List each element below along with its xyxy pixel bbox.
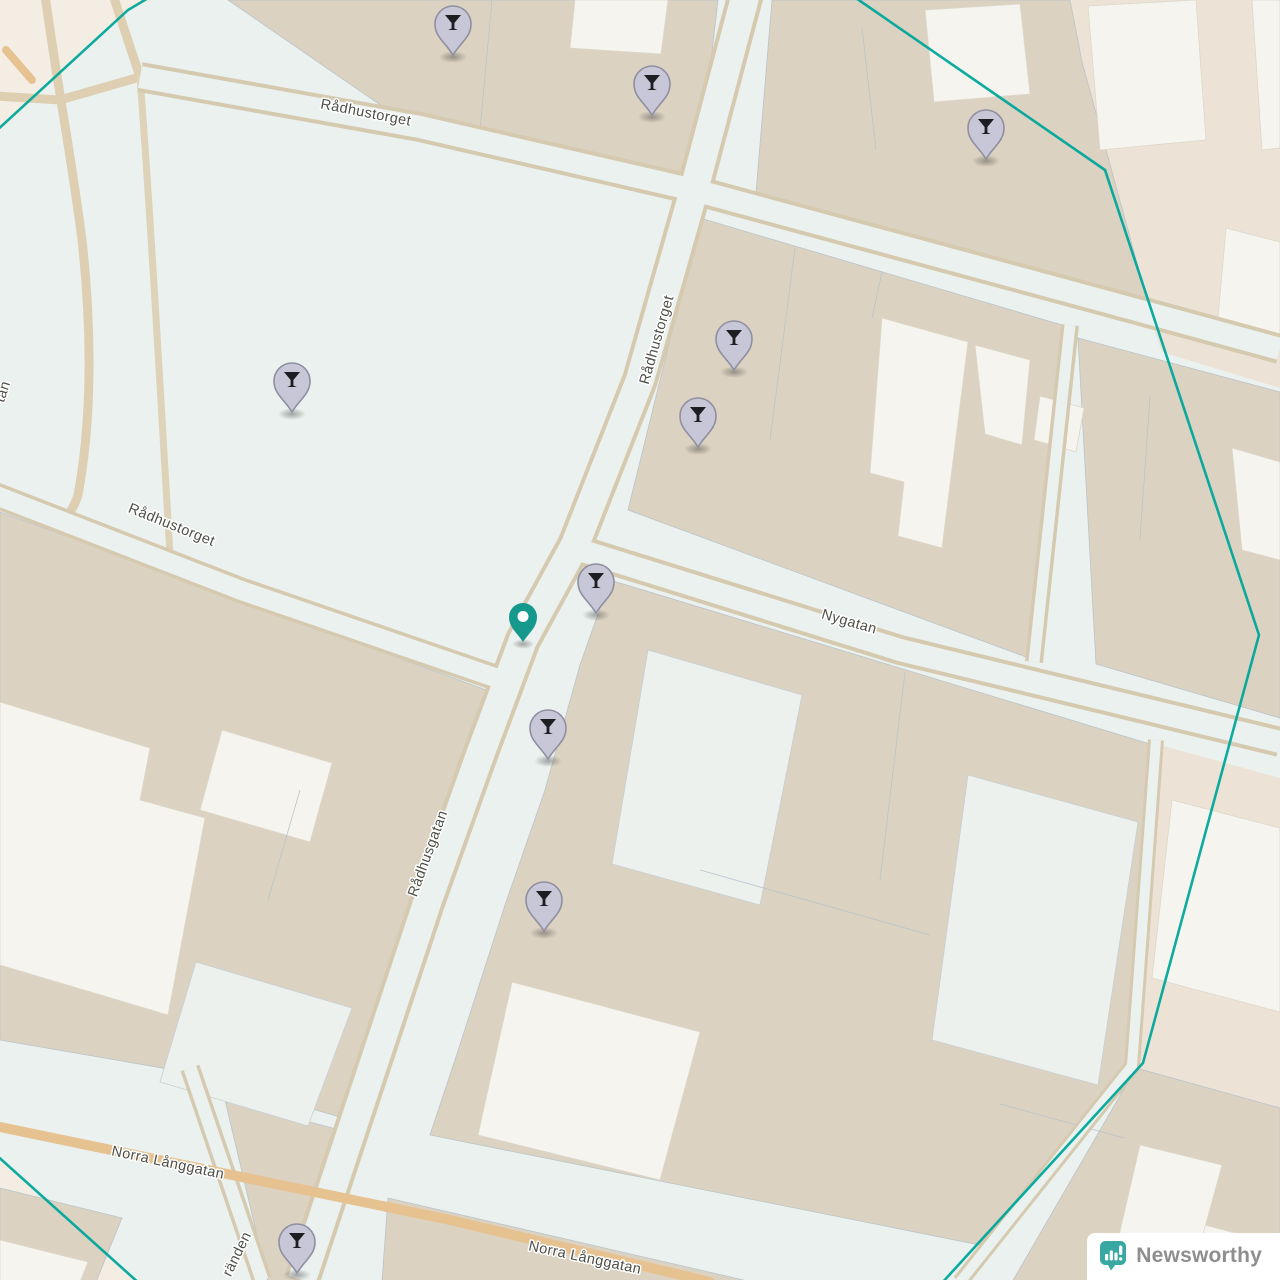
map-viewport[interactable]: RådhustorgetRådhustorgetRådhustorgetNyga…: [0, 0, 1280, 1280]
attribution-brand: Newsworthy: [1136, 1245, 1262, 1266]
poi-pin-cocktail-icon[interactable]: [634, 66, 670, 123]
poi-pin-cocktail-icon[interactable]: [530, 710, 566, 767]
poi-pin-cocktail-icon[interactable]: [578, 564, 614, 621]
poi-pin-cocktail-icon[interactable]: [968, 110, 1004, 167]
location-pin-icon[interactable]: [509, 603, 537, 649]
poi-pin-cocktail-icon[interactable]: [680, 398, 716, 455]
poi-pin-cocktail-icon[interactable]: [526, 882, 562, 939]
poi-pin-cocktail-icon[interactable]: [435, 6, 471, 63]
newsworthy-chart-bubble-icon: [1099, 1240, 1127, 1271]
attribution-badge[interactable]: Newsworthy: [1087, 1233, 1280, 1280]
poi-pin-cocktail-icon[interactable]: [274, 363, 310, 420]
map-canvas[interactable]: RådhustorgetRådhustorgetRådhustorgetNyga…: [0, 0, 1280, 1280]
poi-pin-cocktail-icon[interactable]: [716, 321, 752, 378]
